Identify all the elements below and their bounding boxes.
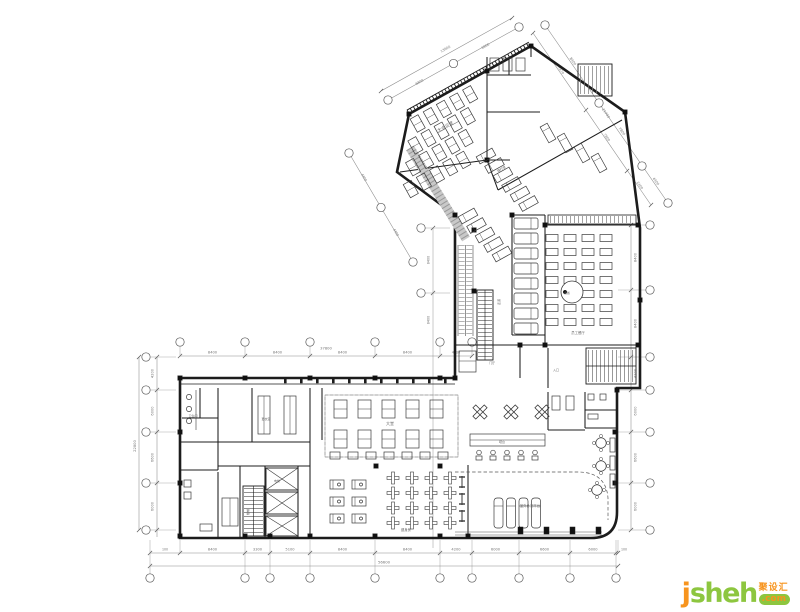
grid-bubble bbox=[646, 479, 654, 487]
grid-bubble bbox=[646, 221, 654, 229]
dimension-label: 8400 bbox=[403, 548, 413, 552]
grid-bubble bbox=[417, 289, 425, 297]
dimension-label: 6600 bbox=[151, 452, 155, 462]
grid-bubble bbox=[515, 23, 523, 31]
grid-bubble bbox=[436, 574, 444, 582]
room-label: 卫生间 bbox=[188, 413, 197, 418]
dimension-label: 8400 bbox=[208, 351, 218, 355]
dimension-label: 8400 bbox=[634, 252, 638, 262]
room-label: 室外休闲平台 bbox=[520, 503, 541, 508]
grid-bubble bbox=[449, 59, 457, 67]
room-label: 门厅 bbox=[489, 360, 495, 365]
grid-bubble bbox=[266, 574, 274, 582]
dimension-label: 6000 bbox=[491, 548, 501, 552]
x-table bbox=[531, 401, 554, 424]
dimension-label: 6000 bbox=[588, 548, 598, 552]
grid-bubble bbox=[566, 574, 574, 582]
room-label: 电梯 bbox=[274, 478, 280, 483]
dimension-label: 13600 bbox=[440, 45, 451, 54]
furniture-layer bbox=[184, 58, 615, 534]
room-label: 走道 bbox=[496, 299, 501, 305]
dimension-label: 8400 bbox=[427, 316, 431, 324]
dimension-label: 8400 bbox=[273, 351, 283, 355]
dimension-label: 4200 bbox=[451, 548, 461, 552]
dimension-label: 6000 bbox=[634, 406, 638, 416]
dimension-label: 8400 bbox=[634, 318, 638, 328]
dimension-label: 4400 bbox=[360, 173, 368, 182]
room-label: 更衣室 bbox=[261, 416, 270, 421]
dimension-label: 8400 bbox=[427, 256, 431, 264]
dimension-label: 4200 bbox=[151, 368, 155, 378]
dimension-label: 6000 bbox=[151, 406, 155, 416]
room-label: 健身房 bbox=[401, 527, 412, 532]
dimension-label: 37800 bbox=[320, 347, 332, 351]
grid-bubble bbox=[176, 338, 184, 346]
grid-bubble bbox=[384, 96, 392, 104]
grid-bubble bbox=[142, 428, 150, 436]
dimension-layer: 1008400330051008400840042006000660060001… bbox=[133, 16, 672, 582]
grid-bubble bbox=[371, 574, 379, 582]
grid-bubble bbox=[468, 574, 476, 582]
grid-bubble bbox=[345, 149, 353, 157]
grid-bubble bbox=[142, 479, 150, 487]
dimension-label: 6800 bbox=[415, 78, 424, 86]
grid-bubble bbox=[646, 353, 654, 361]
x-table bbox=[469, 401, 492, 424]
grid-bubble bbox=[306, 574, 314, 582]
room-label: 员工餐厅 bbox=[571, 330, 585, 335]
grid-bubble bbox=[646, 286, 654, 294]
dimension-label: 100 bbox=[621, 548, 627, 552]
grid-bubble bbox=[371, 338, 379, 346]
grid-bubble bbox=[241, 574, 249, 582]
dimension-label: 21700 bbox=[601, 108, 611, 119]
grid-bubble bbox=[646, 428, 654, 436]
grid-bubble bbox=[306, 338, 314, 346]
jsheh-logo: jsheh 聚设汇 .com bbox=[682, 580, 790, 607]
dimension-label: 8400 bbox=[208, 548, 218, 552]
room-label: 大堂 bbox=[386, 420, 394, 426]
grid-bubble bbox=[595, 99, 603, 107]
dimension-label: 8400 bbox=[403, 351, 413, 355]
dimension-label: 4400 bbox=[392, 228, 400, 237]
grid-bubble bbox=[241, 338, 249, 346]
grid-bubble bbox=[646, 526, 654, 534]
logo-dotcom-badge: .com bbox=[759, 594, 790, 605]
logo-brand: jsheh bbox=[682, 580, 757, 607]
floor-plan-canvas: 1008400330051008400840042006000660060001… bbox=[0, 0, 800, 612]
grid-bubble bbox=[638, 162, 646, 170]
grid-bubble bbox=[646, 386, 654, 394]
room-label: 备餐 bbox=[564, 291, 570, 295]
grid-bubble bbox=[515, 574, 523, 582]
room-label: 吧台 bbox=[499, 439, 505, 444]
dimension-label: 6000 bbox=[151, 501, 155, 511]
label-layer: 大会议室理疗室员工餐厅备餐大堂健身房室外休闲平台楼梯电梯卫生间更衣室门厅吧台走道… bbox=[188, 119, 585, 532]
grid-bubble bbox=[436, 338, 444, 346]
dimension-label: 6600 bbox=[540, 548, 550, 552]
dimension-label: 5100 bbox=[285, 548, 295, 552]
room-label: 大会议室 bbox=[436, 119, 455, 134]
room-label: 楼梯 bbox=[245, 509, 250, 515]
grid-bubble bbox=[541, 21, 549, 29]
x-table bbox=[500, 401, 523, 424]
dimension-label: 2400 bbox=[636, 181, 644, 190]
dimension-label: 8400 bbox=[338, 548, 348, 552]
dimension-label: 22800 bbox=[133, 439, 137, 451]
grid-bubble bbox=[146, 574, 154, 582]
grid-bubble bbox=[142, 526, 150, 534]
grid-bubble bbox=[377, 203, 385, 211]
logo-chinese-name: 聚设汇 bbox=[759, 584, 789, 593]
dimension-label: 6600 bbox=[634, 452, 638, 462]
dimension-label: 4200 bbox=[634, 368, 638, 378]
hall-table-grid bbox=[377, 86, 504, 198]
grid-bubble bbox=[417, 224, 425, 232]
logo-sheh: sheh bbox=[690, 578, 757, 609]
logo-j: j bbox=[682, 578, 690, 609]
dimension-label: 7800 bbox=[603, 133, 611, 142]
dimension-label: 7800 bbox=[618, 127, 626, 137]
dimension-label: 100 bbox=[162, 548, 168, 552]
dimension-label: 56600 bbox=[378, 560, 391, 565]
grid-bubble bbox=[612, 574, 620, 582]
room-label: 理疗室 bbox=[496, 164, 507, 173]
grid-bubble bbox=[142, 386, 150, 394]
grid-bubble bbox=[142, 353, 150, 361]
grid-bubble bbox=[664, 199, 672, 207]
dimension-label: 6800 bbox=[481, 42, 490, 50]
room-label: 入口 bbox=[553, 368, 559, 372]
dimension-label: 3300 bbox=[253, 548, 263, 552]
dimension-label: 8400 bbox=[338, 351, 348, 355]
dimension-label: 6000 bbox=[634, 501, 638, 511]
grid-bubble bbox=[409, 258, 417, 266]
